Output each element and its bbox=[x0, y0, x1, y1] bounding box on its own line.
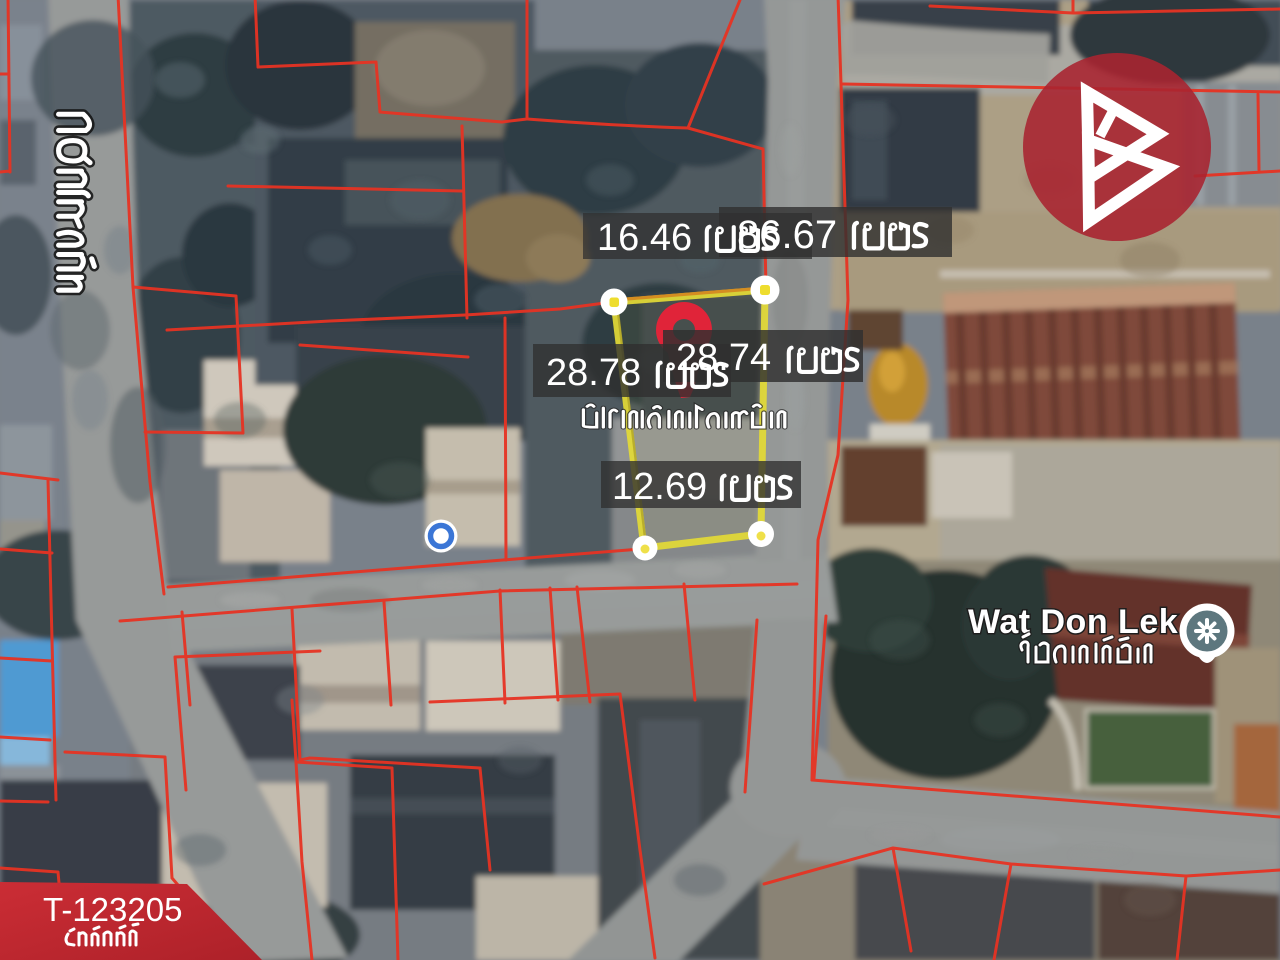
svg-text:28.78: 28.78 bbox=[546, 352, 641, 394]
svg-text:28.74: 28.74 bbox=[676, 337, 771, 379]
svg-text:16.46: 16.46 bbox=[597, 217, 692, 259]
svg-text:12.69: 12.69 bbox=[612, 466, 707, 508]
svg-text:T-123205: T-123205 bbox=[43, 891, 182, 928]
svg-text:Wat Don Lek: Wat Don Lek bbox=[968, 603, 1178, 641]
svg-text:86.67: 86.67 bbox=[737, 213, 837, 257]
